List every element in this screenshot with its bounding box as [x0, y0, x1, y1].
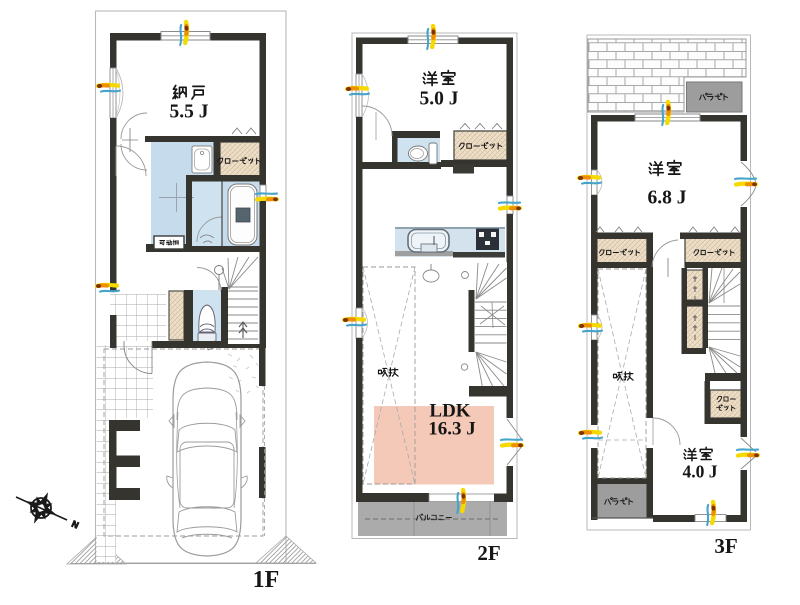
svg-text:5.0 J: 5.0 J	[420, 89, 459, 110]
svg-text:5.5 J: 5.5 J	[170, 102, 209, 123]
svg-text:2F: 2F	[477, 541, 500, 565]
svg-text:3F: 3F	[714, 534, 737, 558]
svg-text:16.3 J: 16.3 J	[428, 419, 476, 440]
svg-text:6.8 J: 6.8 J	[648, 188, 687, 209]
svg-text:1F: 1F	[253, 567, 280, 593]
svg-text:4.0 J: 4.0 J	[683, 462, 718, 482]
